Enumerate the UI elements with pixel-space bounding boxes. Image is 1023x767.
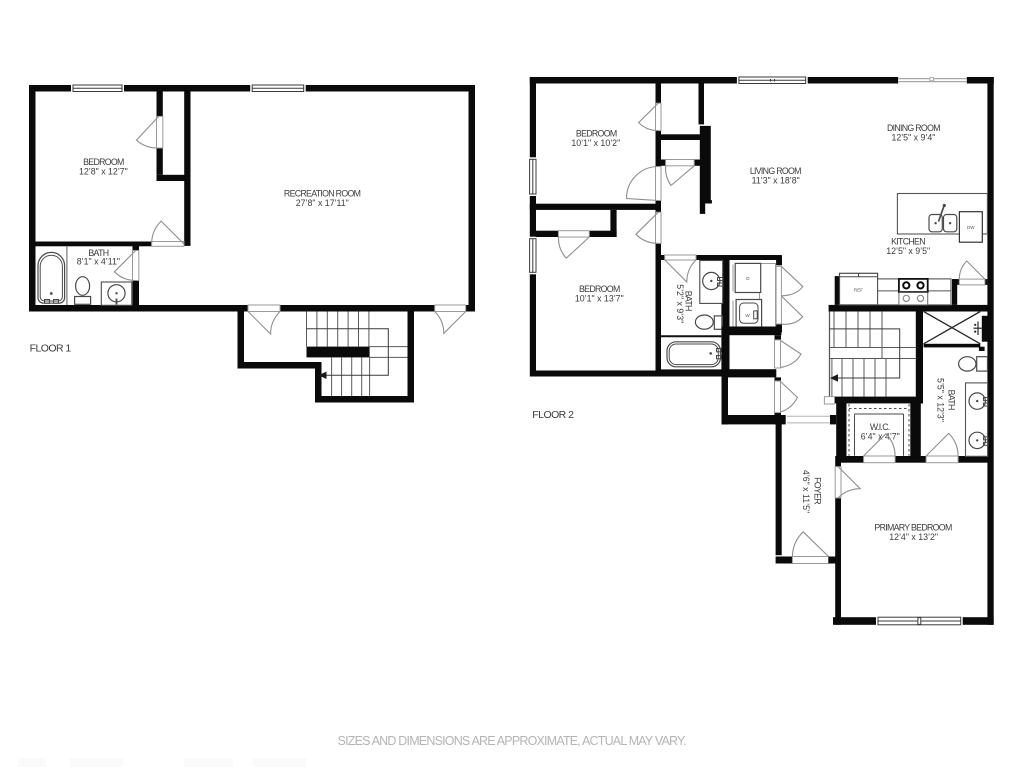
svg-text:5’2" x 9’3": 5’2" x 9’3" [675,284,685,323]
svg-text:4’6" x 11’5": 4’6" x 11’5" [801,470,811,513]
svg-text:PRIMARY BEDROOM: PRIMARY BEDROOM [874,523,952,533]
svg-text:BEDROOM: BEDROOM [576,129,617,139]
svg-text:8’1" x 4’11": 8’1" x 4’11" [77,257,120,267]
svg-text:BEDROOM: BEDROOM [579,284,620,294]
svg-text:12’5" x 9’4": 12’5" x 9’4" [891,132,935,142]
svg-text:DW: DW [967,225,975,230]
svg-text:27’8" x 17’11": 27’8" x 17’11" [296,198,349,208]
svg-text:W: W [745,313,750,318]
svg-text:10’1" x 10’2": 10’1" x 10’2" [571,138,620,148]
svg-text:BEDROOM: BEDROOM [83,157,124,167]
svg-text:FLOOR 2: FLOOR 2 [532,409,574,421]
svg-text:12’5" x 9’5": 12’5" x 9’5" [886,246,930,256]
svg-text:SIZES AND DIMENSIONS ARE APPRO: SIZES AND DIMENSIONS ARE APPROXIMATE, AC… [338,734,687,748]
svg-text:FLOOR 1: FLOOR 1 [30,343,72,355]
svg-text:FOYER: FOYER [813,477,823,504]
svg-text:REF: REF [854,288,863,293]
svg-text:12’4" x 13’2": 12’4" x 13’2" [889,532,938,542]
svg-text:BATH: BATH [947,390,957,410]
svg-text:12’8" x 12’7": 12’8" x 12’7" [79,167,128,177]
svg-text:10’1" x 13’7": 10’1" x 13’7" [575,294,624,304]
svg-text:11’3" x 18’8": 11’3" x 18’8" [752,175,800,185]
svg-text:6’4" x 4’7": 6’4" x 4’7" [861,432,900,442]
svg-text:5’5" x 12’3": 5’5" x 12’3" [936,378,946,422]
